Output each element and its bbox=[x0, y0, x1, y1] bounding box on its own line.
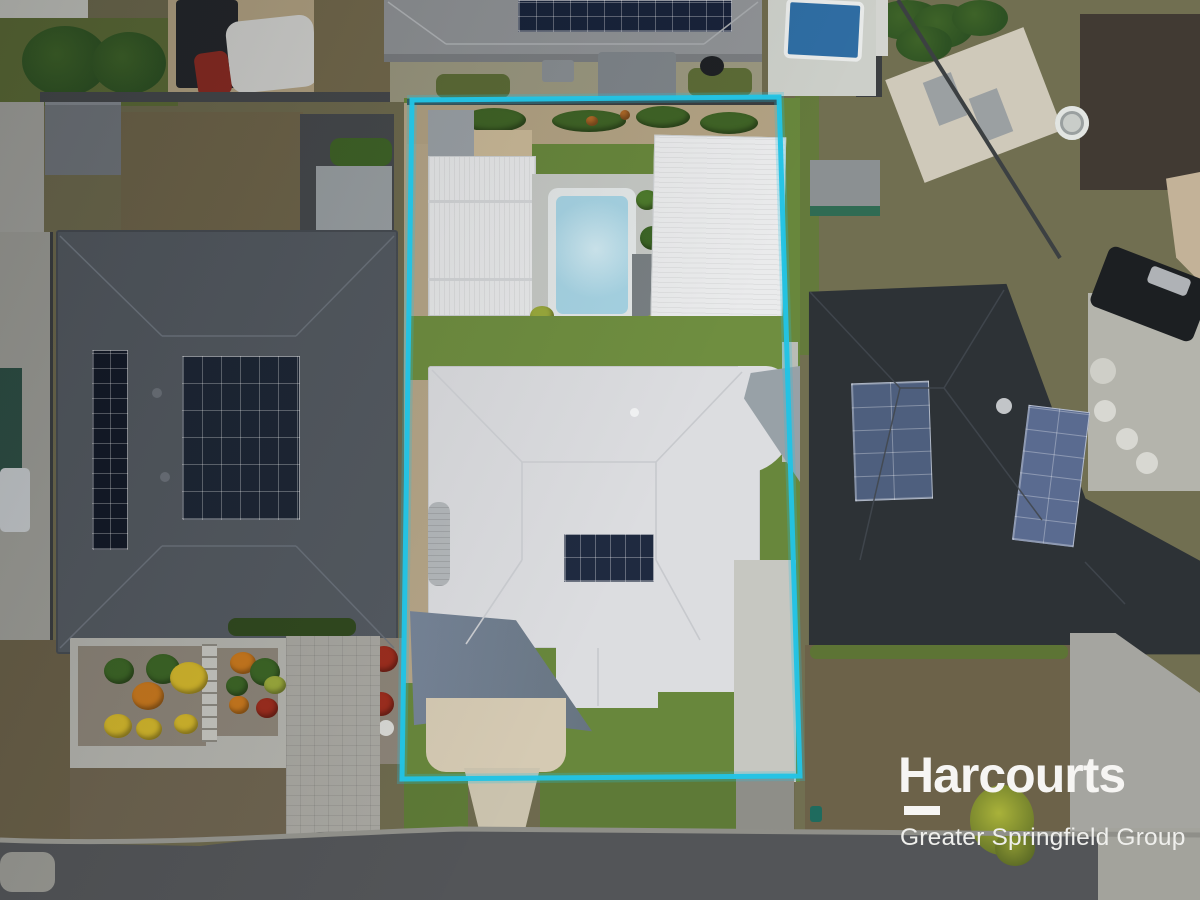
hedge bbox=[330, 138, 392, 166]
kerb-path bbox=[0, 852, 55, 892]
backyard-grass bbox=[436, 74, 510, 98]
neighbour-pool bbox=[783, 0, 864, 62]
side-paving bbox=[0, 102, 44, 234]
rear-fence bbox=[407, 99, 779, 105]
verge-driveway bbox=[736, 778, 794, 836]
agency-logo-underline bbox=[904, 806, 940, 815]
water-tank bbox=[428, 502, 450, 586]
shrub-yellow bbox=[174, 714, 198, 734]
verge-lawn bbox=[404, 778, 468, 836]
main-house-roof-wing bbox=[556, 644, 658, 708]
cream-patio bbox=[426, 698, 566, 772]
shrub-yellow bbox=[170, 662, 208, 694]
agency-logo-tagline: Greater Springfield Group bbox=[900, 824, 1186, 852]
left-house-solar-strip bbox=[92, 350, 128, 550]
shed-roof-seam bbox=[428, 278, 534, 281]
garden-plant-orange bbox=[620, 110, 630, 120]
right-house-solar-a bbox=[851, 381, 933, 502]
lean-to bbox=[428, 110, 474, 160]
water-feature bbox=[378, 720, 394, 736]
green-shed-wall bbox=[810, 206, 880, 216]
aerial-photo: Harcourts Greater Springfield Group bbox=[0, 0, 1200, 900]
shed-roof-seam bbox=[428, 200, 534, 203]
garden-plant-orange bbox=[586, 116, 598, 126]
white-objects bbox=[0, 468, 30, 532]
shrub-green bbox=[226, 676, 248, 696]
satellite-dish bbox=[996, 398, 1012, 414]
round-spa bbox=[1055, 106, 1089, 140]
hose-reel bbox=[810, 806, 822, 822]
roof-vent bbox=[152, 388, 162, 398]
top-house-solar bbox=[518, 0, 732, 32]
stepping-stone bbox=[1116, 428, 1138, 450]
covered-vehicle bbox=[224, 14, 319, 95]
pergola bbox=[598, 52, 676, 100]
shrub-orange bbox=[132, 682, 164, 710]
swimming-pool bbox=[556, 196, 628, 314]
shrub-yellow bbox=[136, 718, 162, 740]
shrub-lime bbox=[264, 676, 286, 694]
retaining-wall bbox=[40, 92, 408, 102]
roof-vent bbox=[160, 472, 170, 482]
garden-equipment bbox=[542, 60, 574, 82]
stepping-path bbox=[202, 644, 217, 742]
right-front-lawn-green-fringe bbox=[810, 645, 1068, 659]
dead-lawn-mid-left bbox=[121, 112, 303, 238]
agency-logo: Harcourts Greater Springfield Group bbox=[898, 750, 1188, 860]
rear-driveway bbox=[734, 560, 796, 782]
shrub-yellow bbox=[104, 714, 132, 738]
hedge-row bbox=[228, 618, 356, 636]
left-house-solar-array bbox=[182, 356, 300, 520]
shrub-orange bbox=[229, 696, 249, 714]
shrub-red bbox=[256, 698, 278, 718]
main-house-roof bbox=[428, 366, 760, 648]
gray-shed bbox=[316, 166, 392, 238]
agency-logo-wordmark: Harcourts bbox=[898, 750, 1188, 800]
shed-roof-left bbox=[428, 156, 536, 316]
dead-lawn-front bbox=[70, 768, 288, 840]
garden-plants bbox=[700, 112, 758, 134]
dead-lawn-bottom-left bbox=[0, 640, 76, 840]
small-outbuilding bbox=[45, 102, 121, 175]
stepping-stone bbox=[1136, 452, 1158, 474]
tree bbox=[92, 32, 166, 94]
main-house-solar bbox=[564, 534, 654, 582]
shrub-green bbox=[104, 658, 134, 684]
roof-vent bbox=[630, 408, 639, 417]
teal-structure bbox=[0, 368, 22, 472]
palm-tree bbox=[952, 0, 1008, 36]
stepping-stone bbox=[1090, 358, 1116, 384]
stepping-stone bbox=[1094, 400, 1116, 422]
verge-lawn bbox=[540, 778, 738, 836]
far-right-house-roof bbox=[1080, 14, 1200, 190]
left-house-driveway bbox=[286, 636, 380, 836]
planter-pot bbox=[700, 56, 724, 76]
red-car bbox=[193, 50, 233, 98]
garden-plants bbox=[636, 106, 690, 128]
